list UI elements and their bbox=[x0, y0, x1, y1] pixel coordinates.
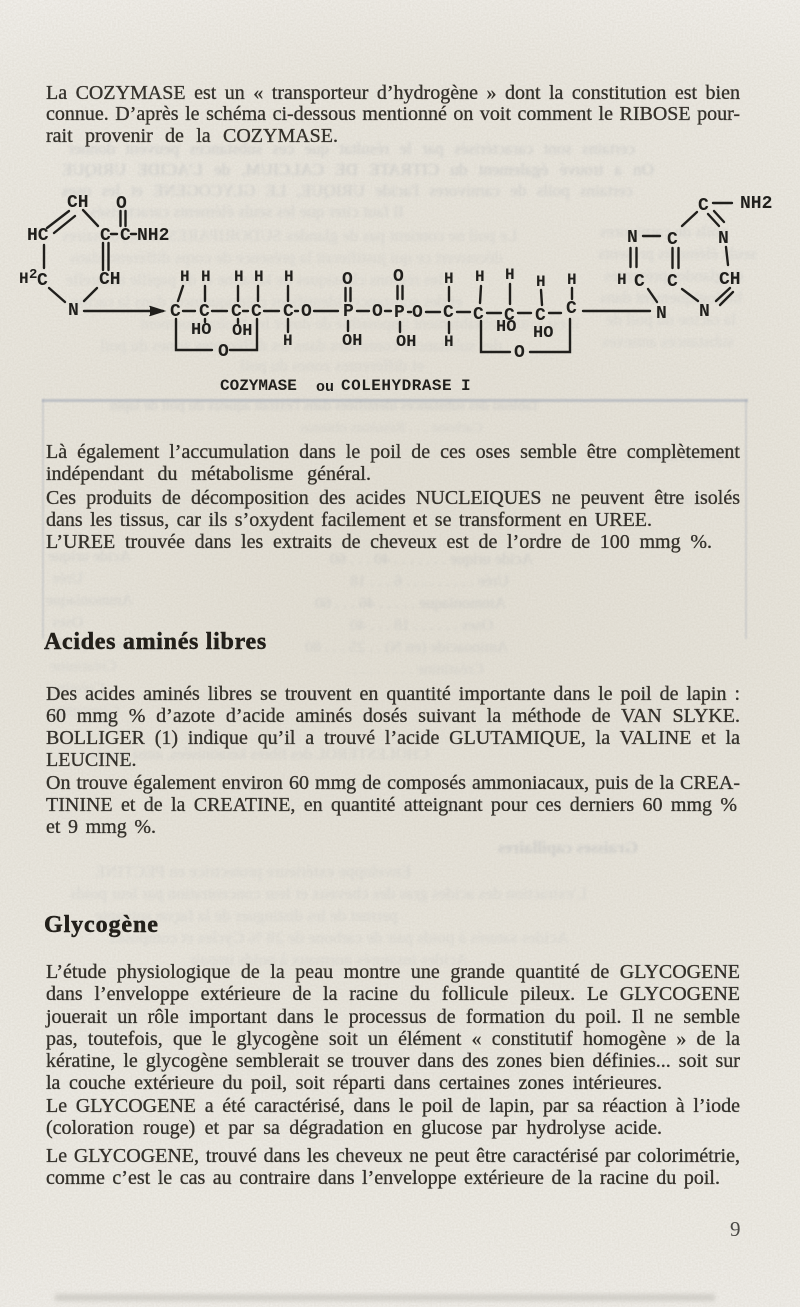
svg-text:H: H bbox=[617, 271, 627, 289]
svg-text:O: O bbox=[393, 267, 404, 287]
svg-text:O: O bbox=[218, 342, 229, 362]
svg-text:HO: HO bbox=[533, 324, 553, 343]
svg-text:I: I bbox=[461, 377, 471, 395]
svg-text:H: H bbox=[475, 268, 485, 286]
svg-text:OH: OH bbox=[396, 333, 416, 352]
svg-text:O: O bbox=[342, 270, 353, 290]
svg-text:N: N bbox=[699, 302, 710, 322]
svg-text:P: P bbox=[394, 303, 405, 323]
svg-text:C: C bbox=[566, 299, 577, 319]
svg-text:C: C bbox=[667, 272, 678, 292]
svg-text:C: C bbox=[443, 303, 454, 323]
svg-text:OH: OH bbox=[232, 322, 252, 341]
svg-text:COZYMASE: COZYMASE bbox=[220, 377, 297, 395]
svg-text:H: H bbox=[444, 270, 454, 288]
svg-text:H: H bbox=[201, 268, 211, 286]
svg-text:C: C bbox=[535, 306, 546, 326]
svg-text:H: H bbox=[283, 332, 293, 350]
svg-text:H: H bbox=[536, 273, 546, 291]
svg-text:ou: ou bbox=[316, 379, 334, 396]
svg-text:O: O bbox=[514, 343, 525, 363]
svg-text:CH: CH bbox=[67, 193, 89, 213]
svg-text:N: N bbox=[718, 229, 729, 249]
svg-text:H: H bbox=[254, 268, 264, 286]
svg-text:CH: CH bbox=[99, 270, 121, 290]
svg-text:H: H bbox=[505, 266, 515, 284]
svg-text:C: C bbox=[231, 302, 242, 322]
svg-text:H: H bbox=[180, 268, 190, 286]
svg-text:H: H bbox=[234, 268, 244, 286]
svg-text:N: N bbox=[68, 301, 79, 321]
svg-text:O: O bbox=[372, 302, 383, 322]
svg-text:N: N bbox=[656, 304, 667, 324]
svg-text:H: H bbox=[567, 271, 577, 289]
svg-text:H: H bbox=[19, 270, 29, 288]
svg-text:C: C bbox=[120, 226, 131, 246]
svg-text:H: H bbox=[284, 268, 294, 286]
svg-text:C: C bbox=[37, 271, 48, 291]
svg-text:H: H bbox=[444, 333, 454, 351]
svg-text:HO: HO bbox=[496, 318, 516, 337]
svg-text:COLEHYDRASE: COLEHYDRASE bbox=[341, 377, 452, 395]
svg-text:P: P bbox=[343, 302, 354, 322]
svg-text:C: C bbox=[473, 305, 484, 325]
svg-text:N: N bbox=[627, 228, 638, 248]
svg-text:C: C bbox=[634, 272, 645, 292]
svg-text:O: O bbox=[412, 303, 423, 323]
svg-text:HO: HO bbox=[191, 321, 211, 340]
svg-text:OH: OH bbox=[342, 332, 362, 351]
svg-text:O: O bbox=[301, 302, 312, 322]
svg-text:NH2: NH2 bbox=[137, 226, 169, 246]
svg-text:HC: HC bbox=[27, 226, 49, 246]
svg-text:NH2: NH2 bbox=[740, 194, 772, 214]
